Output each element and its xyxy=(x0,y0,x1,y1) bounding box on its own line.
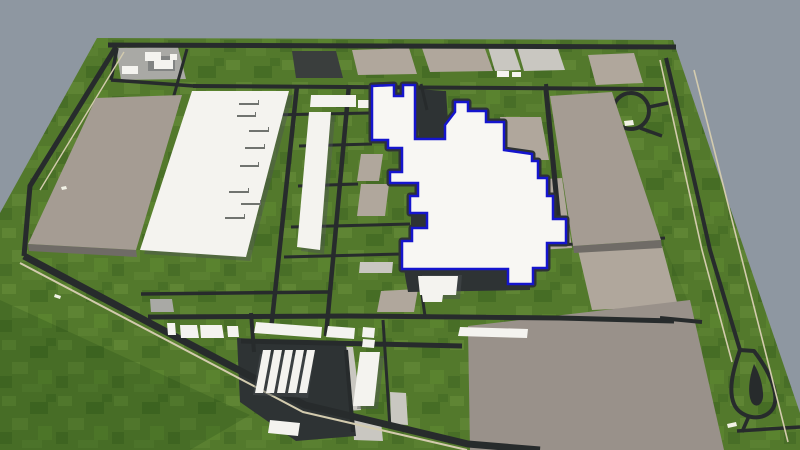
small-building[interactable] xyxy=(167,323,176,335)
annex-step xyxy=(422,295,443,302)
small-building[interactable] xyxy=(326,326,355,339)
small-building[interactable] xyxy=(227,326,239,337)
pad xyxy=(359,262,393,273)
rooftop-unit xyxy=(239,156,258,165)
pad-white xyxy=(122,66,138,74)
gatehouse[interactable] xyxy=(154,60,173,69)
small-building[interactable] xyxy=(180,325,199,338)
small-building[interactable] xyxy=(200,325,224,338)
marking xyxy=(624,120,634,126)
rooftop-unit xyxy=(240,194,260,203)
gatehouse[interactable] xyxy=(145,52,161,61)
pad xyxy=(588,53,643,85)
road-top xyxy=(108,45,676,47)
paved-yard xyxy=(468,300,724,450)
rooftop-unit xyxy=(228,182,248,191)
site-plan-canvas xyxy=(0,0,800,450)
small-building[interactable] xyxy=(512,72,521,77)
small-building[interactable] xyxy=(362,327,375,338)
pad xyxy=(357,154,383,181)
gatehouse[interactable] xyxy=(170,54,177,60)
rooftop-unit xyxy=(224,208,244,217)
road-cross xyxy=(141,292,330,294)
viewport-3d[interactable] xyxy=(0,0,800,450)
rooftop-unit xyxy=(244,138,264,147)
small-building[interactable] xyxy=(497,71,509,77)
rooftop-unit xyxy=(236,106,255,115)
lab-bar-building[interactable] xyxy=(310,95,356,107)
small-building[interactable] xyxy=(358,100,370,108)
pad xyxy=(357,184,389,216)
pad xyxy=(150,299,174,312)
pad xyxy=(390,392,408,425)
annex-building[interactable] xyxy=(418,276,458,295)
small-building[interactable] xyxy=(362,339,375,348)
pad xyxy=(578,246,678,310)
pad xyxy=(422,46,493,72)
rooftop-unit xyxy=(248,121,268,130)
rooftop-unit xyxy=(238,94,258,103)
pad xyxy=(377,289,418,312)
pad-charcoal xyxy=(292,51,343,78)
pad xyxy=(352,48,417,75)
pad xyxy=(517,46,565,71)
